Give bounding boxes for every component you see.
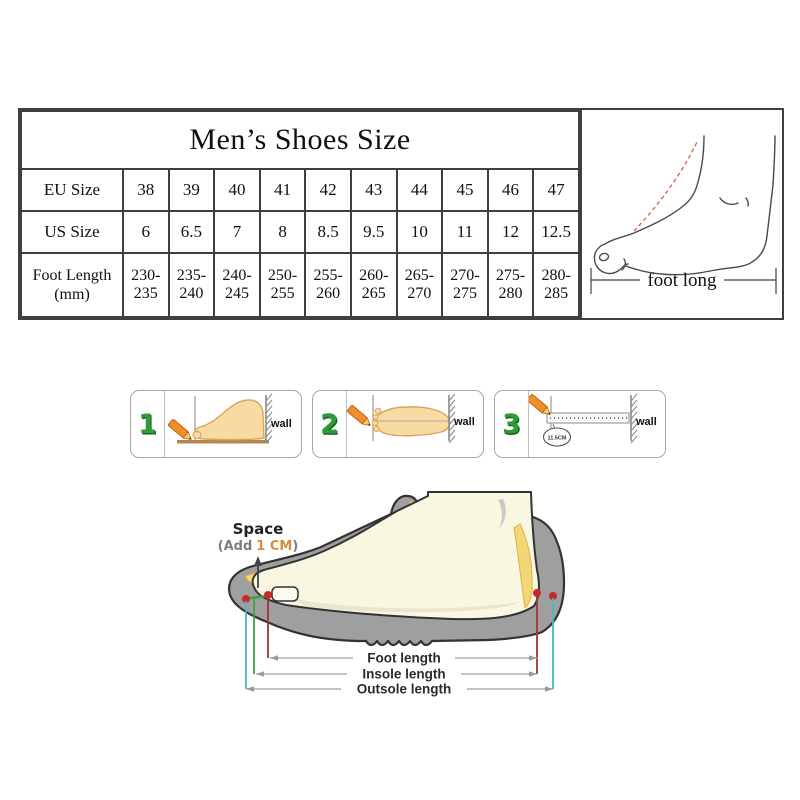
add-suffix: ) xyxy=(292,539,298,554)
foot-length-row: Foot Length (mm) 230-235 235-240 240-245… xyxy=(21,253,579,317)
add-one-cm-label: (Add1 CM) xyxy=(218,539,299,554)
us-size-row: US Size 6 6.5 7 8 8.5 9.5 10 11 12 12.5 xyxy=(21,211,579,253)
step-3-illustration: 11.5CM wall xyxy=(529,391,665,457)
us-size-cell: 10 xyxy=(397,211,443,253)
step-1-number: 1 xyxy=(131,391,165,457)
foot-length-cell: 250-255 xyxy=(260,253,306,317)
eu-size-cell: 39 xyxy=(169,169,215,211)
eu-size-cell: 41 xyxy=(260,169,306,211)
size-chart-panel: Men’s Shoes Size EU Size 38 39 40 41 42 … xyxy=(18,108,784,320)
eu-size-cell: 43 xyxy=(351,169,397,211)
title-row: Men’s Shoes Size xyxy=(21,111,579,169)
pencil-icon xyxy=(347,405,373,429)
foot-length-cell: 265-270 xyxy=(397,253,443,317)
foot-length-label: Foot length xyxy=(367,651,440,666)
foot-length-illustration: foot long xyxy=(580,110,782,318)
space-label: Space xyxy=(233,520,284,538)
foot-length-cell: 235-240 xyxy=(169,253,215,317)
add-value: 1 CM xyxy=(256,539,292,554)
shoe-cross-section-diagram: Space (Add1 CM) Foot length Insole lengt… xyxy=(200,478,580,713)
step-2-number: 2 xyxy=(313,391,347,457)
us-size-cell: 12.5 xyxy=(533,211,579,253)
table-title: Men’s Shoes Size xyxy=(21,111,579,169)
foot-length-label-line2: (mm) xyxy=(24,285,120,304)
measure-step-3: 3 11.5CM wall xyxy=(494,390,666,458)
size-table: Men’s Shoes Size EU Size 38 39 40 41 42 … xyxy=(20,110,580,318)
foot-length-cell: 280-285 xyxy=(533,253,579,317)
foot-length-cell: 260-265 xyxy=(351,253,397,317)
wall-label: wall xyxy=(270,418,292,430)
eu-size-cell: 46 xyxy=(488,169,534,211)
ruler-measurement-value: 11.5CM xyxy=(548,436,567,442)
us-size-cell: 8 xyxy=(260,211,306,253)
add-prefix: (Add xyxy=(218,539,253,554)
step-2-illustration: wall xyxy=(347,391,483,457)
wall-label: wall xyxy=(635,416,657,428)
step-1-illustration: wall xyxy=(165,391,301,457)
eu-row-label: EU Size xyxy=(21,169,123,211)
measure-step-2: 2 wall xyxy=(312,390,484,458)
foot-length-row-label: Foot Length (mm) xyxy=(21,253,123,317)
eu-size-cell: 47 xyxy=(533,169,579,211)
foot-side-view xyxy=(195,400,264,440)
eu-size-row: EU Size 38 39 40 41 42 43 44 45 46 47 xyxy=(21,169,579,211)
foot-length-cell: 255-260 xyxy=(305,253,351,317)
ruler xyxy=(547,413,629,423)
eu-size-cell: 45 xyxy=(442,169,488,211)
pencil-icon xyxy=(168,419,194,443)
shoe-size-infographic: { "size_table": { "title": "Men’s Shoes … xyxy=(0,0,800,800)
foot-long-caption: foot long xyxy=(647,270,717,291)
pencil-icon xyxy=(529,394,553,418)
us-size-cell: 8.5 xyxy=(305,211,351,253)
foot-side-profile-icon: foot long xyxy=(582,110,786,318)
foot-length-label-line1: Foot Length xyxy=(24,266,120,285)
big-toe-window xyxy=(272,587,298,601)
us-size-cell: 7 xyxy=(214,211,260,253)
step-3-number: 3 xyxy=(495,391,529,457)
us-row-label: US Size xyxy=(21,211,123,253)
foot-length-cell: 230-235 xyxy=(123,253,169,317)
foot-length-cell: 275-280 xyxy=(488,253,534,317)
insole-length-label: Insole length xyxy=(362,667,445,682)
foot-length-cell: 240-245 xyxy=(214,253,260,317)
us-size-cell: 6 xyxy=(123,211,169,253)
big-toe xyxy=(193,432,201,439)
eu-size-cell: 42 xyxy=(305,169,351,211)
us-size-cell: 12 xyxy=(488,211,534,253)
us-size-cell: 9.5 xyxy=(351,211,397,253)
measuring-board xyxy=(177,440,269,444)
outsole-length-label: Outsole length xyxy=(357,682,452,697)
eu-size-cell: 38 xyxy=(123,169,169,211)
eu-size-cell: 40 xyxy=(214,169,260,211)
foot-length-cell: 270-275 xyxy=(442,253,488,317)
us-size-cell: 11 xyxy=(442,211,488,253)
measure-step-1: 1 wall xyxy=(130,390,302,458)
eu-size-cell: 44 xyxy=(397,169,443,211)
wall-label: wall xyxy=(453,416,475,428)
us-size-cell: 6.5 xyxy=(169,211,215,253)
